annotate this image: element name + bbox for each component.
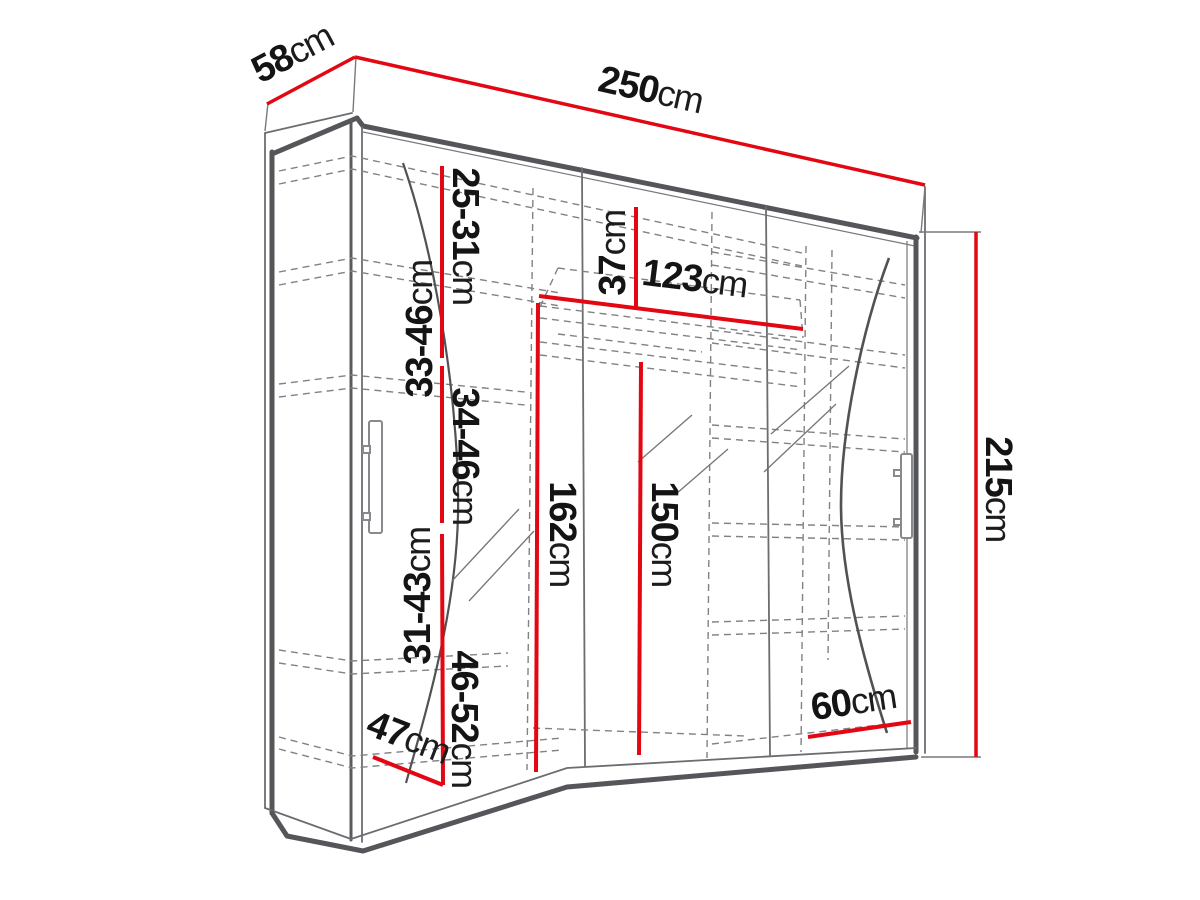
dim-150-line xyxy=(639,362,641,755)
hat-shelf-side xyxy=(540,268,558,307)
right-handle-mount xyxy=(894,519,901,525)
partition-dashed xyxy=(527,188,533,770)
right-shelf-line xyxy=(712,343,905,368)
left-handle-mount xyxy=(363,513,370,520)
top-shelf-line xyxy=(279,156,802,253)
dim-150-label: 150cm xyxy=(643,481,685,586)
mirror-shine xyxy=(764,404,836,472)
right-shelf-line xyxy=(712,536,905,540)
dim-shelfgap2-label: 33-46cm xyxy=(399,260,441,397)
extension-lines xyxy=(265,56,981,757)
dim-123-line xyxy=(539,296,803,329)
dim-shelfgap3-label: 34-46cm xyxy=(444,387,486,524)
right-shelf-line xyxy=(712,629,905,635)
dim-162-label: 162cm xyxy=(541,481,583,586)
door-divider-right xyxy=(766,207,770,756)
dim-height-label: 215cm xyxy=(977,436,1019,541)
right-shelf-line xyxy=(712,330,905,355)
mid-shelf-line xyxy=(540,342,802,374)
dim-shelfgap1-label: 25-31cm xyxy=(444,167,486,304)
base-plinth-edge xyxy=(272,757,916,851)
right-shelf-line xyxy=(712,425,905,439)
right-handle-mount xyxy=(894,470,901,476)
right-shelf-line xyxy=(712,438,905,452)
right-door-handle xyxy=(901,454,912,538)
top-shelf-line xyxy=(279,169,802,266)
dim-37-label: 37cm xyxy=(592,210,634,295)
partition-dashed xyxy=(801,246,806,752)
mid-shelf-line xyxy=(540,355,802,387)
hanging-rail xyxy=(558,334,702,352)
mirror-shine xyxy=(469,531,534,601)
dim-shelfgap4-label: 31-43cm xyxy=(397,527,439,664)
dim-123-label: 123cm xyxy=(640,252,750,307)
dim-162-line xyxy=(536,303,538,772)
ext-line xyxy=(353,56,356,112)
dim-depth-label: 58cm xyxy=(245,15,340,92)
mirror-shine xyxy=(771,366,849,434)
dimension-labels: 58cm 250cm 215cm 25-31cm 33-46cm 34-46cm… xyxy=(245,15,1019,788)
right-door-mirror-curve xyxy=(841,258,889,733)
hat-shelf-side xyxy=(800,300,803,338)
door-divider-left xyxy=(582,168,585,766)
wardrobe-dimension-diagram: 58cm 250cm 215cm 25-31cm 33-46cm 34-46cm… xyxy=(0,0,1200,900)
partition-dashed xyxy=(828,250,832,660)
dim-width-label: 250cm xyxy=(595,58,707,122)
dim-60-label: 60cm xyxy=(808,675,899,729)
right-shelf-line xyxy=(712,523,905,527)
mirror-shine xyxy=(638,415,692,462)
dim-shelfgap5-label: 46-52cm xyxy=(443,650,485,787)
diagram-canvas: 58cm 250cm 215cm 25-31cm 33-46cm 34-46cm… xyxy=(0,0,1200,900)
ext-line xyxy=(265,103,268,131)
left-handle-mount xyxy=(363,446,370,453)
right-shelf-line xyxy=(712,616,905,622)
side-panel-top-front-edge xyxy=(272,118,357,154)
